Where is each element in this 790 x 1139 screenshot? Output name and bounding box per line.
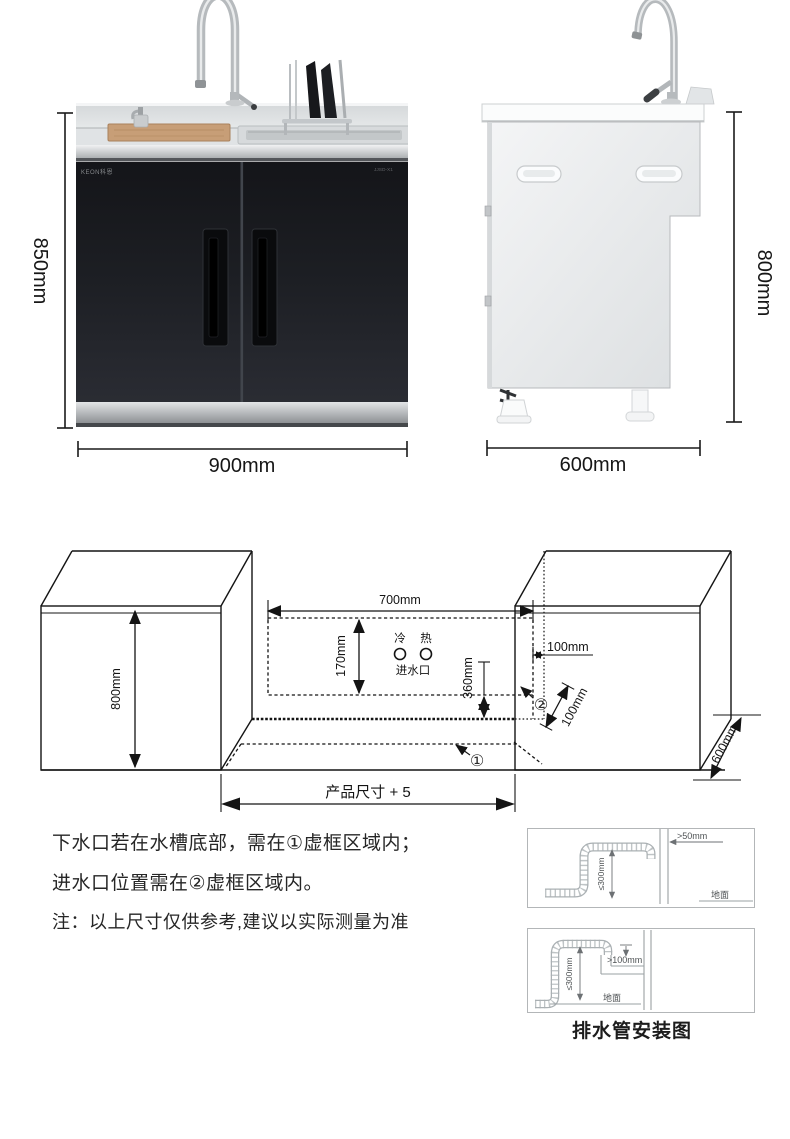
side-depth-label: 600mm [560,454,627,476]
front-height-dim: 850mm [29,113,73,428]
svg-text:800mm: 800mm [109,668,123,710]
note-line-1: 下水口若在水槽底部，需在①虚框区域内； [52,828,512,855]
svg-text:360mm: 360mm [461,657,475,699]
installation-notes: 下水口若在水槽底部，需在①虚框区域内； 进水口位置需在②虚框区域内。 注：以上尺… [52,828,512,947]
front-width-dim: 900mm [78,441,407,477]
product-dimension-sheet: KEON科恩 JJSD-X1 [0,0,790,1139]
dim-cabinet-height: 800mm [109,611,135,767]
svg-text:②: ② [534,697,548,714]
dim-inlet-bottom-offset: 360mm [461,657,490,717]
svg-text:100mm: 100mm [559,685,591,728]
front-height-label: 850mm [29,238,51,305]
dim-inlet-side-offset: 100mm [533,640,593,663]
photo-dimensions: 850mm 900mm 800mm 600mm [0,0,790,500]
zone1-callout: ① [456,745,484,770]
side-height-label: 800mm [753,250,775,317]
hot-inlet-icon [421,649,432,660]
left-cabinet-outline [41,551,252,770]
svg-text:①: ① [470,753,484,770]
drain-diagram-top: ≤300mm >50mm 地面 [527,828,755,908]
svg-text:170mm: 170mm [334,635,348,677]
dim-cutout-span: 产品尺寸 + 5 [221,774,515,812]
water-inlets: 冷 热 进水口 [394,632,432,677]
svg-text:600mm: 600mm [709,722,741,765]
svg-text:700mm: 700mm [379,593,421,607]
drain2-ground-label: 地面 [603,992,621,1003]
dim-cutout-width: 700mm [268,593,533,623]
front-width-label: 900mm [209,455,276,477]
drain2-depth-label: >100mm [607,955,642,965]
zone2-callout: ② [521,687,548,714]
inlet-label: 进水口 [396,664,431,677]
drain-zone-lines [225,742,542,768]
hot-label: 热 [420,632,432,645]
side-height-dim: 800mm [726,112,775,422]
right-cabinet-outline [515,551,731,770]
note-line-2: 进水口位置需在②虚框区域内。 [52,868,512,895]
drain1-height-label: ≤300mm [596,857,606,890]
cold-label: 冷 [394,632,406,645]
installation-diagram: 800mm 700mm 170mm 冷 热 进水口 360mm [25,538,770,830]
drain-diagram-caption: 排水管安装图 [527,1016,737,1043]
side-depth-dim: 600mm [487,440,700,476]
svg-text:产品尺寸 + 5: 产品尺寸 + 5 [325,784,410,801]
note-line-3: 注：以上尺寸仅供参考,建议以实际测量为准 [52,908,512,934]
drain1-gap-label: >50mm [677,831,707,841]
drain2-height-label: ≤300mm [564,957,574,990]
dim-inlet-height: 170mm [334,620,359,693]
drain-diagram-bottom: >100mm ≤300mm 地面 [527,928,755,1013]
cold-inlet-icon [395,649,406,660]
drain1-ground-label: 地面 [711,889,729,900]
svg-text:100mm: 100mm [547,640,589,654]
